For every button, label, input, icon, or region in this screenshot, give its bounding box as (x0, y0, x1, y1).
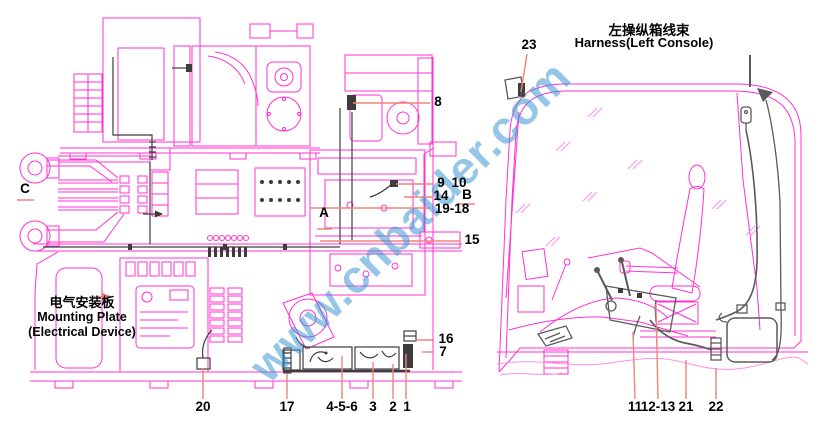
technical-drawing-page: www.cnbaider.com 电气安装板 Mounting Plate (E… (0, 0, 814, 437)
callout-3: 3 (369, 400, 377, 414)
section-label-b: B (462, 188, 472, 202)
callout-17: 17 (279, 400, 294, 414)
callout-15: 15 (464, 233, 479, 247)
diagram-line-art (0, 0, 814, 437)
callout-1: 1 (403, 400, 411, 414)
section-label-c: C (20, 182, 30, 196)
console-harness-wires (505, 55, 785, 362)
callout-10: 10 (451, 176, 466, 190)
callout-21: 21 (678, 400, 693, 414)
cab-drawing (497, 55, 808, 375)
section-label-a: A (319, 206, 329, 220)
harness-title-english: Harness(Left Console) (575, 35, 714, 50)
callout-2: 2 (389, 400, 397, 414)
callout-8: 8 (434, 95, 442, 109)
caption-english-line2: (Electrical Device) (28, 325, 136, 340)
callout-12-13: 12-13 (641, 400, 676, 414)
caption-chinese: 电气安装板 (28, 295, 136, 310)
glass-hatching (497, 108, 808, 375)
caption-english-line1: Mounting Plate (28, 310, 136, 325)
callout-23: 23 (521, 38, 536, 52)
callout-19-18: 19-18 (435, 202, 470, 216)
callout-22: 22 (708, 400, 723, 414)
callout-7: 7 (439, 345, 447, 359)
mounting-plate-caption: 电气安装板 Mounting Plate (Electrical Device) (28, 295, 136, 340)
callout-4-5-6: 4-5-6 (326, 400, 358, 414)
callout-20: 20 (195, 400, 210, 414)
